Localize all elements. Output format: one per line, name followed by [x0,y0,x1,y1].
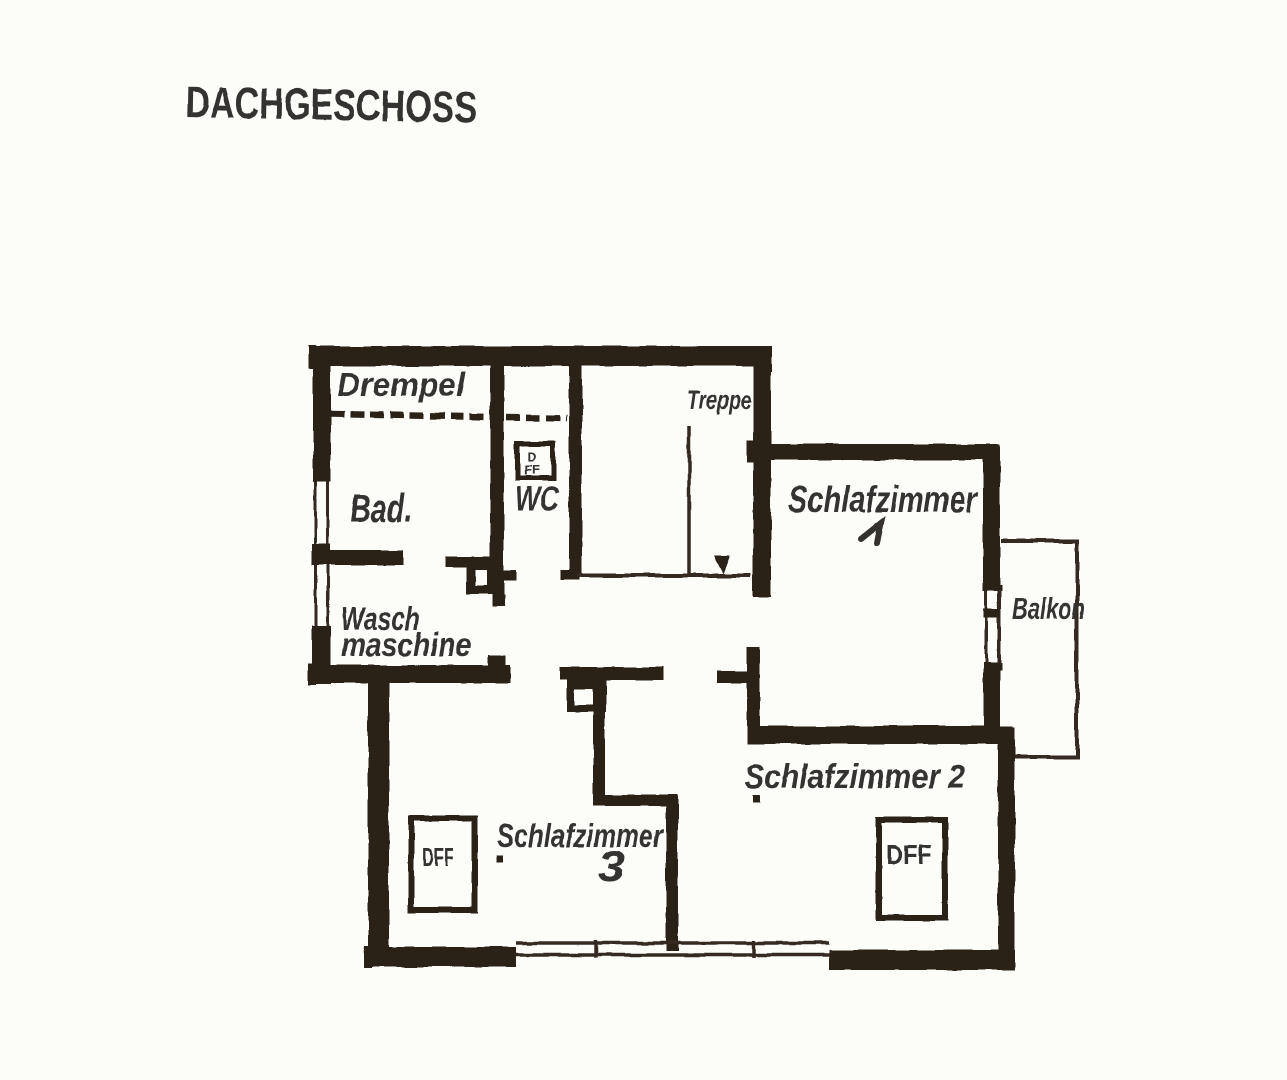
svg-text:DFF: DFF [886,839,932,870]
svg-text:Balkon: Balkon [1012,591,1085,626]
svg-text:DFF: DFF [422,842,454,872]
svg-text:Schlafzimmer: Schlafzimmer [788,479,979,520]
svg-text:3: 3 [598,842,625,891]
svg-text:Bad.: Bad. [350,487,412,531]
svg-text:FF: FF [524,462,540,477]
svg-text:Schlafzimmer: Schlafzimmer [497,817,665,854]
svg-text:maschine: maschine [341,626,471,663]
svg-text:Schlafzimmer 2: Schlafzimmer 2 [744,758,965,796]
svg-text:WC: WC [515,480,559,518]
svg-text:Treppe: Treppe [687,385,752,415]
svg-text:Drempel: Drempel [337,366,466,403]
svg-text:DACHGESCHOSS: DACHGESCHOSS [185,78,478,133]
